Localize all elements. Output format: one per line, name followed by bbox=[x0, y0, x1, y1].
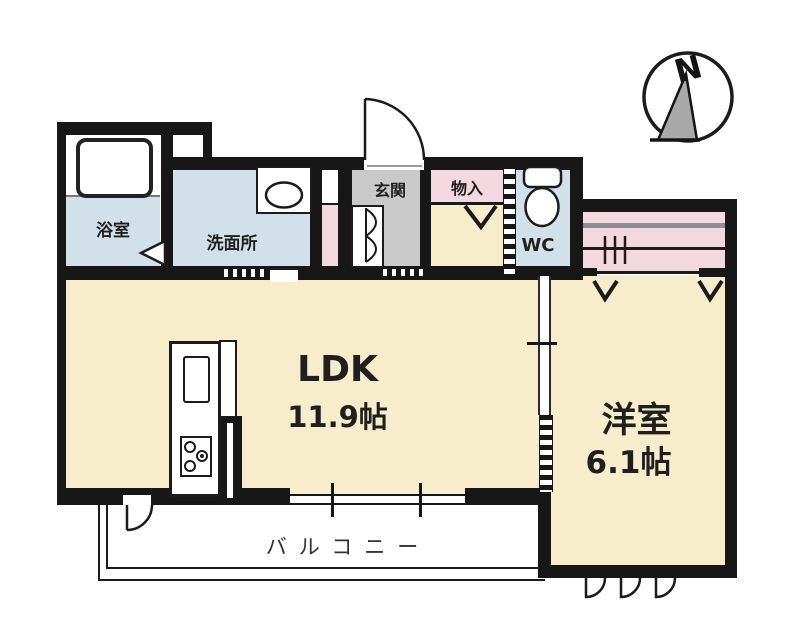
bathroom-door-icon bbox=[141, 241, 165, 265]
ldk-size-label: 11.9帖 bbox=[240, 394, 435, 436]
entrance-door-icon bbox=[365, 99, 424, 166]
closet-arrow-right-icon bbox=[699, 281, 722, 299]
sink-oval-icon bbox=[266, 183, 302, 208]
toilet-icon bbox=[524, 167, 561, 226]
shoe-cabinet-doors-icon bbox=[366, 208, 376, 262]
stove-burners-icon bbox=[185, 442, 207, 471]
balcony-label: バルコニー bbox=[248, 531, 448, 561]
western-room-size-label: 6.1帖 bbox=[540, 437, 717, 482]
western-window-arcs-icon bbox=[586, 578, 675, 597]
closet-arrow-left-icon bbox=[594, 281, 617, 299]
wc-label: WC bbox=[510, 235, 566, 256]
balcony-door-icon bbox=[127, 505, 152, 530]
western-room-label: 洋室 bbox=[548, 392, 725, 443]
floor-plan: N 浴室 洗面所 玄関 物入 WC LDK 11.9帖 洋室 6.1帖 バルコニ… bbox=[0, 0, 800, 625]
storage-label: 物入 bbox=[431, 175, 503, 199]
washroom-label: 洗面所 bbox=[172, 229, 292, 254]
bathroom-label: 浴室 bbox=[66, 216, 160, 241]
entrance-label: 玄関 bbox=[356, 177, 424, 201]
closet-hanger-ticks bbox=[605, 236, 625, 264]
storage-arrow-icon bbox=[465, 206, 496, 227]
ldk-label: LDK bbox=[240, 349, 435, 390]
compass: N bbox=[644, 47, 732, 141]
